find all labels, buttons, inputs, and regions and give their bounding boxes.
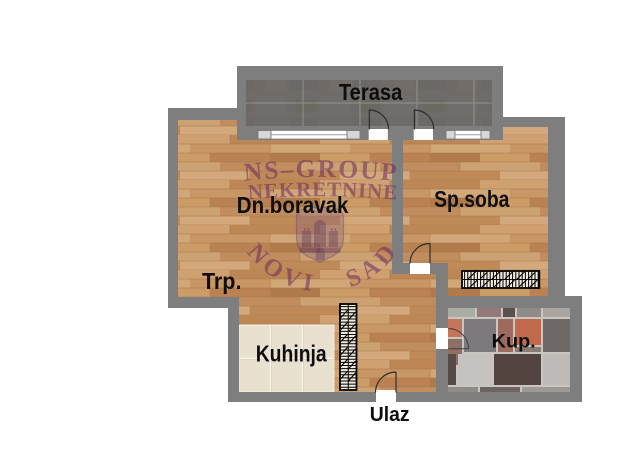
svg-text:Dn.boravak: Dn.boravak xyxy=(237,192,349,218)
svg-text:Ulaz: Ulaz xyxy=(370,404,410,426)
svg-text:Terasa: Terasa xyxy=(339,79,403,105)
svg-text:Sp.soba: Sp.soba xyxy=(434,186,509,212)
svg-text:Kuhinja: Kuhinja xyxy=(256,340,327,366)
svg-text:Trp.: Trp. xyxy=(202,268,242,294)
svg-text:Kup.: Kup. xyxy=(492,331,536,353)
